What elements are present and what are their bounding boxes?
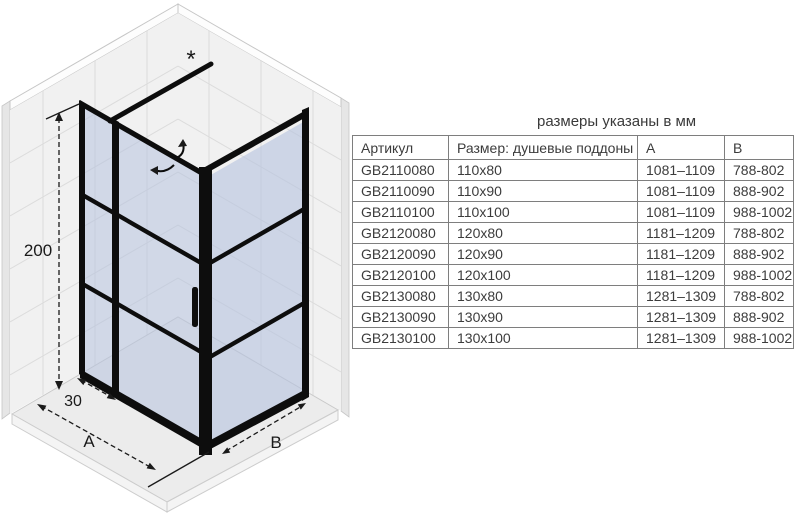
table-row: GB2130080130x801281–1309788-802 (353, 286, 794, 307)
product-spec-sheet: * 200 30 A (0, 0, 799, 520)
table-cell: 130x90 (449, 307, 638, 328)
isometric-diagram: * 200 30 A (0, 0, 352, 520)
table-cell: 888-902 (725, 244, 794, 265)
table-cell: GB2130080 (353, 286, 449, 307)
width-a-label: A (83, 432, 95, 451)
table-cell: GB2110080 (353, 160, 449, 181)
front-wall-post (79, 100, 85, 378)
column-header: Размер: душевые поддоны (449, 136, 638, 160)
table-cell: 1081–1109 (638, 181, 725, 202)
table-cell: 1181–1209 (638, 244, 725, 265)
table-row: GB2120100120x1001181–1209988-1002 (353, 265, 794, 286)
table-row: GB2110080110x801081–1109788-802 (353, 160, 794, 181)
column-header: A (638, 136, 725, 160)
dimensions-table: АртикулРазмер: душевые поддоныAB GB21100… (352, 135, 794, 349)
table-cell: 1181–1209 (638, 223, 725, 244)
table-cell: 988-1002 (725, 265, 794, 286)
table-row: GB2110100110x1001081–1109988-1002 (353, 202, 794, 223)
side-panel (205, 107, 309, 452)
door-handle (192, 287, 198, 327)
side-wall-post (302, 107, 309, 401)
table-cell: 110x90 (449, 181, 638, 202)
table-cell: GB2120100 (353, 265, 449, 286)
table-cell: 1281–1309 (638, 307, 725, 328)
table-cell: GB2110090 (353, 181, 449, 202)
column-header: Артикул (353, 136, 449, 160)
depth-b-label: B (270, 433, 281, 452)
asterisk-mark: * (186, 46, 195, 73)
column-header: B (725, 136, 794, 160)
table-row: GB2130090130x901281–1309888-902 (353, 307, 794, 328)
table-cell: 120x80 (449, 223, 638, 244)
table-cell: GB2130100 (353, 328, 449, 349)
table-cell: 130x80 (449, 286, 638, 307)
table-row: GB2120090120x901181–1209888-902 (353, 244, 794, 265)
table-cell: 120x90 (449, 244, 638, 265)
table-header-row: АртикулРазмер: душевые поддоныAB (353, 136, 794, 160)
table-cell: GB2120080 (353, 223, 449, 244)
panel-width-label: 30 (64, 393, 82, 410)
table-cell: 120x100 (449, 265, 638, 286)
corner-post (199, 167, 212, 455)
height-dimension-label: 200 (24, 241, 52, 260)
table-cell: 988-1002 (725, 328, 794, 349)
table-cell: 888-902 (725, 181, 794, 202)
table-cell: 110x100 (449, 202, 638, 223)
table-cell: 788-802 (725, 286, 794, 307)
table-cell: 130x100 (449, 328, 638, 349)
table-cell: 788-802 (725, 160, 794, 181)
table-cell: 1181–1209 (638, 265, 725, 286)
table-cell: GB2110100 (353, 202, 449, 223)
table-row: GB2120080120x801181–1209788-802 (353, 223, 794, 244)
table-cell: 888-902 (725, 307, 794, 328)
door-hinge-post (112, 118, 119, 400)
table-cell: 1081–1109 (638, 160, 725, 181)
table-cell: GB2130090 (353, 307, 449, 328)
table-cell: 788-802 (725, 223, 794, 244)
table-cell: 988-1002 (725, 202, 794, 223)
table-row: GB2130100130x1001281–1309988-1002 (353, 328, 794, 349)
table-row: GB2110090110x901081–1109888-902 (353, 181, 794, 202)
table-cell: GB2120090 (353, 244, 449, 265)
table-cell: 1281–1309 (638, 286, 725, 307)
units-note: размеры указаны в мм (537, 113, 696, 130)
table-cell: 1281–1309 (638, 328, 725, 349)
table-cell: 1081–1109 (638, 202, 725, 223)
table-cell: 110x80 (449, 160, 638, 181)
